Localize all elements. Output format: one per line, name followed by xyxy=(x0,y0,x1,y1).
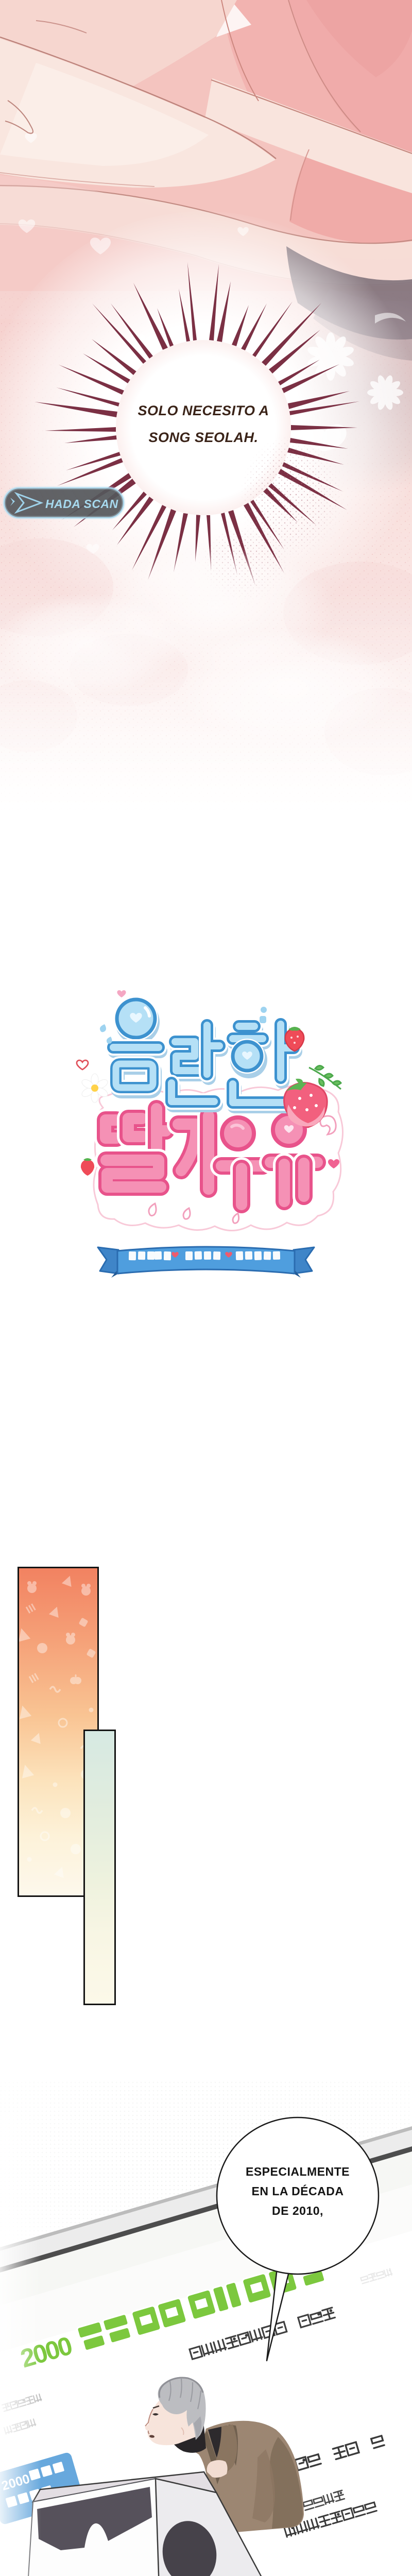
svg-text:ESPECIALMENTE: ESPECIALMENTE xyxy=(246,2165,350,2178)
svg-text:SONG SEOLAH.: SONG SEOLAH. xyxy=(148,430,258,445)
svg-text:EN LA DÉCADA: EN LA DÉCADA xyxy=(252,2184,344,2198)
svg-text:DE 2010,: DE 2010, xyxy=(272,2204,323,2217)
svg-text:HADA SCAN: HADA SCAN xyxy=(45,497,118,511)
svg-text:SOLO NECESITO A: SOLO NECESITO A xyxy=(138,403,269,418)
